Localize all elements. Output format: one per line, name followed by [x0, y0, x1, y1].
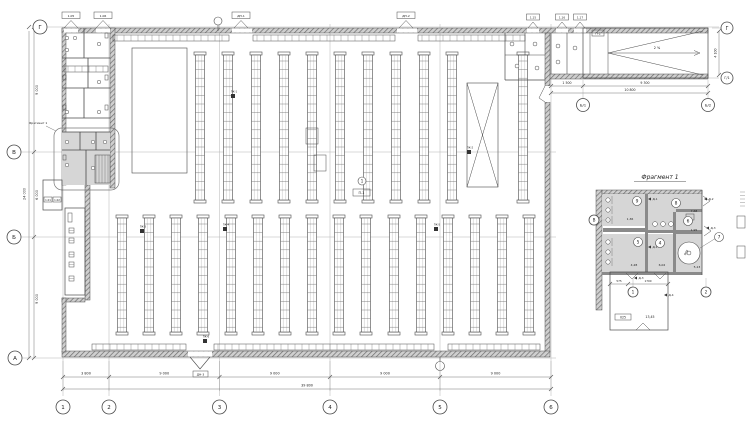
- doors: 1.051.06ДН-1ДН-21.151.161.17ДН-3: [62, 12, 587, 377]
- storage-rack: [279, 215, 291, 335]
- axis-label: Б/1: [580, 102, 587, 107]
- axis-label: А: [13, 356, 17, 362]
- equipment-tag: 025: [620, 316, 626, 320]
- door-tag: Д-1: [653, 245, 658, 249]
- room-area: 4,28: [631, 263, 638, 267]
- ramp-area: П-22 %ГГ/14 100Б/1Б/21 5009 30010 800: [549, 22, 733, 112]
- marker-tag: ПК-3: [140, 225, 147, 229]
- left-axis-markers: ГВБА: [7, 20, 47, 365]
- door-tag: 1.17: [577, 16, 583, 20]
- door-tag: Д-3: [711, 226, 716, 230]
- room-area: 1,95: [691, 228, 698, 232]
- storage-rack: [333, 215, 345, 335]
- floor-plan-svg: Фрагмент 11.011.021.051.06ДН-1ДН-21.151.…: [0, 0, 748, 421]
- axis-label: 2: [107, 405, 111, 411]
- storage-rack: [517, 52, 529, 203]
- vestibule: 1.011.02: [43, 180, 62, 210]
- door-tag: Д-1: [653, 197, 658, 201]
- storage-rack: [306, 215, 318, 335]
- storage-rack: [250, 52, 262, 203]
- zone-tag: П-1: [359, 191, 365, 195]
- dim-label: 9 000: [35, 294, 39, 304]
- marker-tag: ПК-5: [434, 223, 441, 227]
- dim-label: 9 000: [270, 372, 280, 376]
- axis-label: Б: [12, 235, 16, 241]
- storage-rack: [360, 215, 372, 335]
- storage-rack: [496, 215, 508, 335]
- storage-rack: [390, 52, 402, 203]
- dim-label: 9 000: [491, 372, 501, 376]
- axis-label: Г/1: [724, 76, 729, 80]
- axis-label: В: [593, 218, 596, 223]
- room-area: 7,68: [691, 209, 698, 213]
- storage-rack: [442, 215, 454, 335]
- storage-rack: [306, 52, 318, 203]
- dim-label: 10 800: [624, 88, 635, 92]
- dim-label: 6 000: [35, 190, 39, 200]
- dim-label: 24 000: [23, 188, 27, 200]
- storage-rack: [222, 52, 234, 203]
- axis-label: Г: [725, 26, 728, 32]
- dim-label: 9 000: [380, 372, 390, 376]
- axis-label: 5: [438, 405, 442, 411]
- storage-rack: [197, 215, 209, 335]
- dim-label: 9 000: [35, 85, 39, 95]
- fragment-callout-label: Фрагмент 1: [29, 121, 48, 125]
- amenity-annex: [62, 28, 110, 185]
- marker-tag: ПК-6: [203, 335, 210, 339]
- room-number: 5: [637, 240, 640, 246]
- door-tag: 1.02: [54, 198, 60, 202]
- storage-rack: [418, 52, 430, 203]
- room-area: 1,36: [627, 217, 634, 221]
- storage-rack: [143, 215, 155, 335]
- storage-rack: [388, 215, 400, 335]
- room-area: 6,02: [659, 263, 666, 267]
- storage-rack: [278, 52, 290, 203]
- room-area: 13,45: [645, 315, 654, 319]
- bottom-dimensions: 3 8009 0009 0009 0009 00039 800: [61, 361, 553, 391]
- bottom-axis-markers: 123456: [56, 400, 558, 414]
- axis-label: В: [12, 150, 16, 156]
- axis-label: 1: [632, 290, 635, 295]
- storage-rack: [334, 52, 346, 203]
- drawing-sheet: Фрагмент 11.011.021.051.06ДН-1ДН-21.151.…: [0, 0, 748, 421]
- room-number: 8: [675, 201, 678, 207]
- ramp-tag: П-2: [595, 32, 600, 36]
- door-tag: ДН-2: [402, 14, 410, 18]
- corner-rooms: [505, 33, 577, 80]
- storage-rack: [170, 215, 182, 335]
- dim-label: 1 500: [562, 81, 571, 85]
- left-dimensions: 9 0006 0009 00024 000: [23, 25, 40, 360]
- room-number: 9: [636, 199, 639, 205]
- door-tag: 1.05: [68, 14, 75, 18]
- room-area: 5,13: [694, 265, 701, 269]
- fragment-title: Фрагмент 1: [641, 174, 678, 181]
- storage-rack: [415, 215, 427, 335]
- marker-tag: ПК-4: [223, 223, 230, 227]
- slope-label: 2 %: [654, 46, 661, 50]
- storage-rack: [225, 215, 237, 335]
- storage-rack: [523, 215, 535, 335]
- door-tag: Д-4: [669, 293, 674, 297]
- dim-label: 3 800: [81, 372, 91, 376]
- room-number: 6: [687, 219, 690, 225]
- axis-label: Б/2: [705, 102, 712, 107]
- dim-label: 39 800: [301, 384, 313, 388]
- rack-rows-lower: [116, 155, 535, 335]
- fragment-detail: Фрагмент 19009854671,367,684,286,021,955…: [589, 174, 745, 330]
- door-tag: 1.06: [100, 14, 107, 18]
- door-tag: ДН-1: [237, 14, 245, 18]
- axis-label: 2: [705, 290, 708, 295]
- room-number: 7: [718, 235, 721, 241]
- storage-rack: [194, 52, 206, 203]
- electrical-room: [65, 208, 85, 295]
- storage-rack: [116, 215, 128, 335]
- storage-rack: [252, 215, 264, 335]
- dim-label: 575: [616, 279, 622, 283]
- marker-tag: ПК-2: [467, 146, 474, 150]
- axis-label: 3: [218, 405, 222, 411]
- storage-rack: [469, 215, 481, 335]
- door-tag: Д-3: [639, 276, 644, 280]
- axis-label: 4: [328, 405, 332, 411]
- storage-rack: [446, 52, 458, 203]
- room-number: 4: [659, 241, 662, 247]
- door-tag: ДН-3: [197, 373, 205, 377]
- zone-number: 1: [361, 179, 364, 184]
- axis-label: 1: [61, 405, 65, 411]
- door-tag: 1.16: [559, 16, 565, 20]
- marker-tag: ПК-1: [231, 90, 238, 94]
- door-tag: 1.15: [530, 16, 536, 20]
- dim-label: 9 000: [159, 372, 169, 376]
- door-tag: 1.01: [45, 198, 51, 202]
- dim-label: 9 300: [640, 81, 649, 85]
- dim-label: 4 100: [714, 48, 718, 57]
- axis-label: 6: [549, 405, 553, 411]
- dim-label: 1700: [644, 279, 651, 283]
